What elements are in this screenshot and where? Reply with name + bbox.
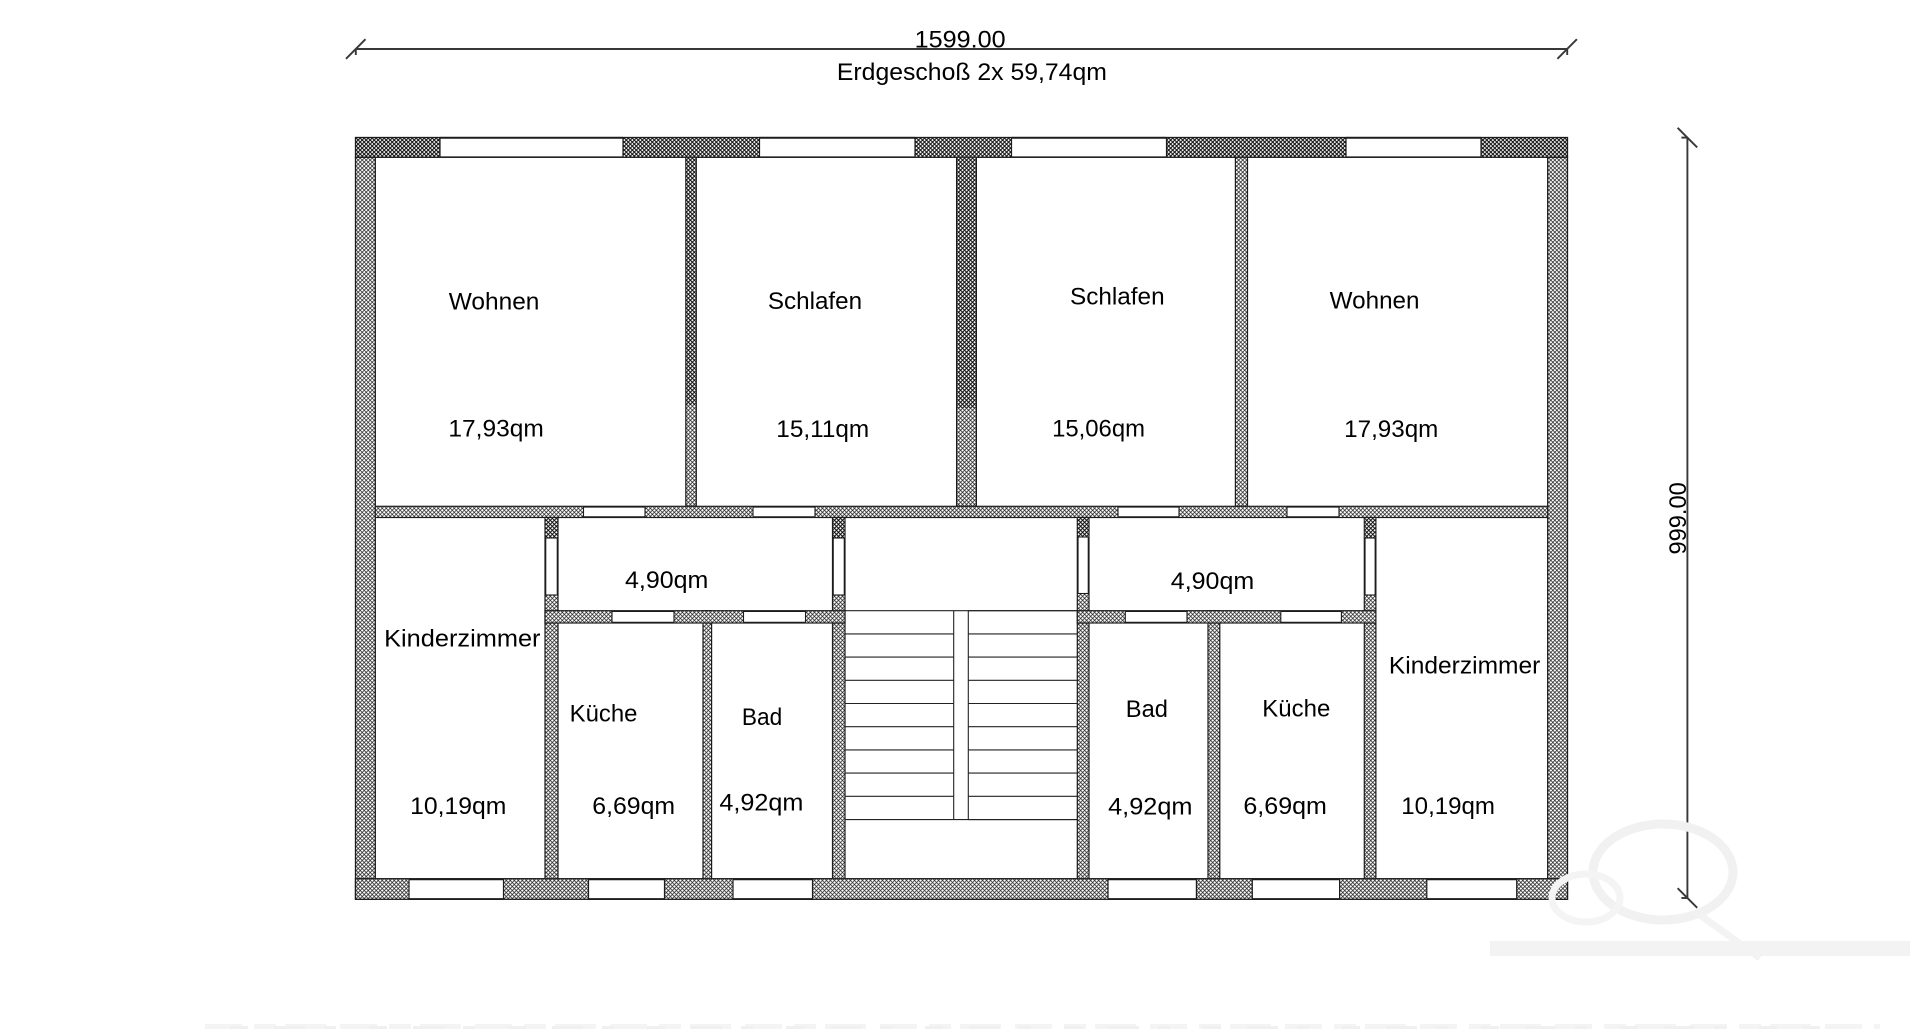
svg-text:Erdgeschoß 2x 59,74qm: Erdgeschoß 2x 59,74qm — [837, 60, 1107, 86]
svg-text:6,69qm: 6,69qm — [592, 794, 675, 820]
svg-text:Kinderzimmer: Kinderzimmer — [1389, 654, 1541, 680]
svg-text:Wohnen: Wohnen — [449, 289, 540, 315]
svg-text:4,90qm: 4,90qm — [1171, 569, 1254, 595]
svg-text:15,06qm: 15,06qm — [1052, 416, 1145, 442]
svg-text:17,93qm: 17,93qm — [448, 417, 543, 443]
svg-text:10,19qm: 10,19qm — [1401, 794, 1495, 820]
svg-text:15,11qm: 15,11qm — [776, 417, 869, 443]
svg-text:Küche: Küche — [1262, 697, 1330, 723]
svg-text:Schlafen: Schlafen — [1070, 284, 1165, 310]
svg-text:Wohnen: Wohnen — [1330, 289, 1420, 315]
svg-text:4,92qm: 4,92qm — [719, 790, 803, 816]
svg-text:Bad: Bad — [742, 705, 782, 731]
svg-text:4,90qm: 4,90qm — [625, 568, 708, 594]
svg-text:4,92qm: 4,92qm — [1108, 795, 1192, 821]
svg-text:Kinderzimmer: Kinderzimmer — [384, 627, 541, 653]
svg-text:17,93qm: 17,93qm — [1344, 417, 1438, 443]
svg-text:999.00: 999.00 — [1666, 482, 1692, 554]
svg-text:Schlafen: Schlafen — [768, 289, 862, 315]
svg-text:1599.00: 1599.00 — [915, 28, 1006, 54]
svg-text:Bad: Bad — [1126, 697, 1168, 723]
svg-text:10,19qm: 10,19qm — [410, 794, 506, 820]
svg-text:Küche: Küche — [570, 701, 638, 727]
svg-text:6,69qm: 6,69qm — [1243, 794, 1327, 820]
